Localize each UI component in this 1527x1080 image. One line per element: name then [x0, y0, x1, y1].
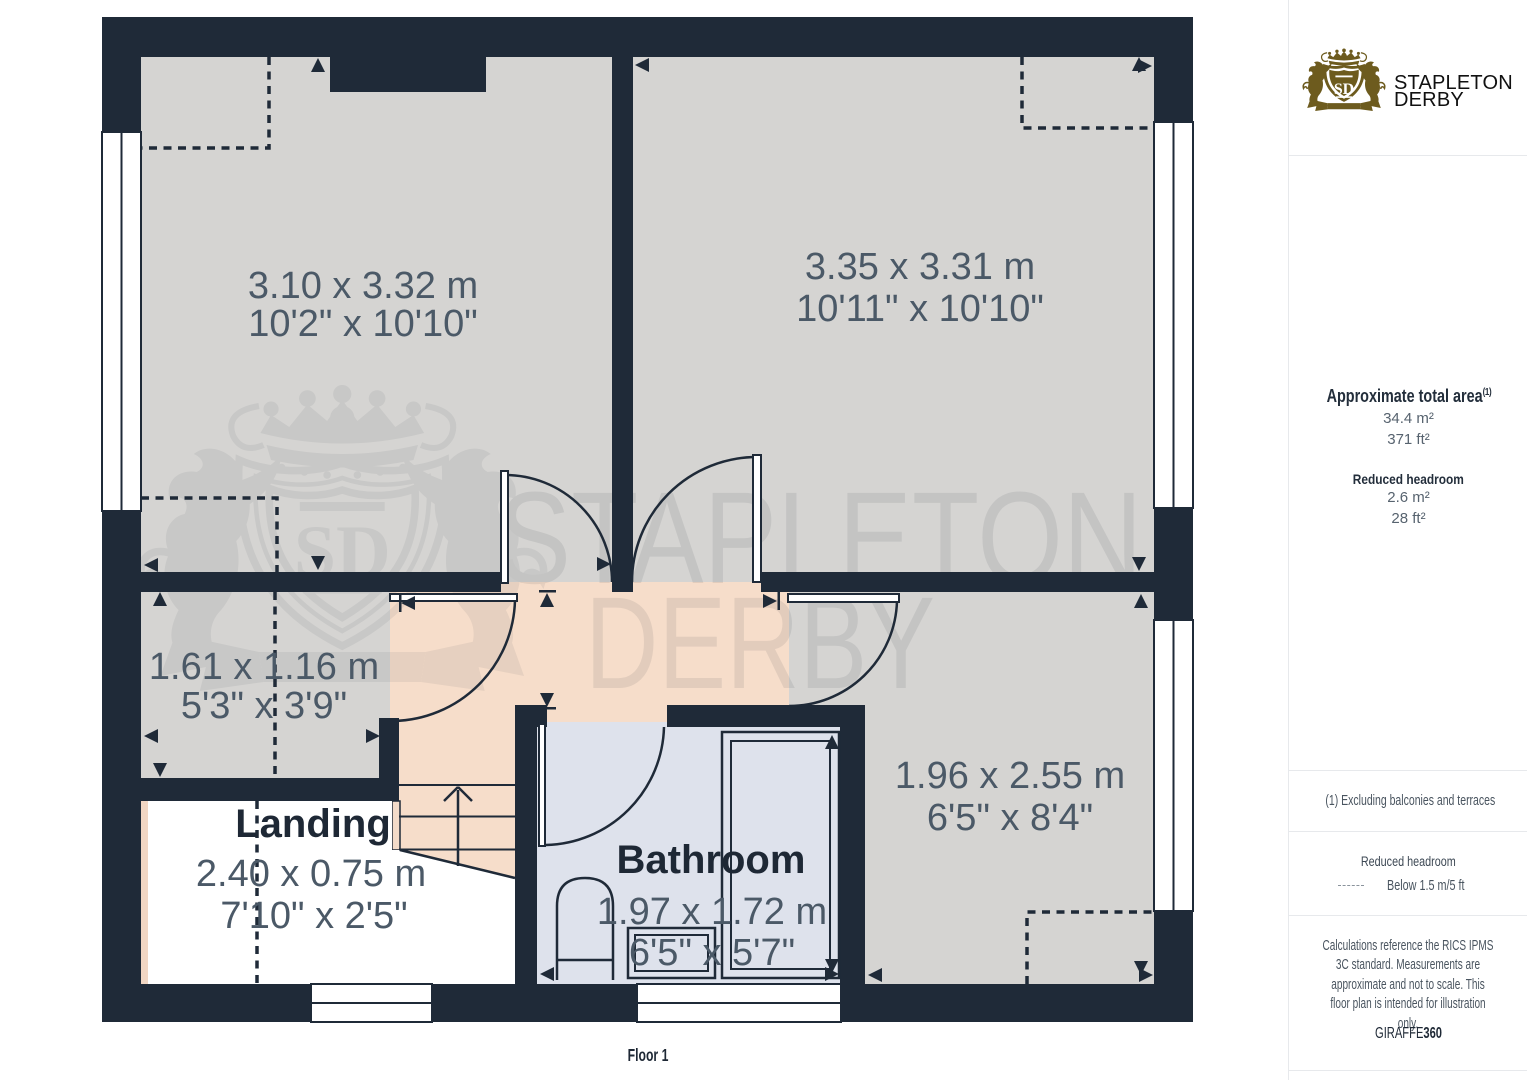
- svg-text:Bathroom: Bathroom: [617, 838, 806, 882]
- svg-text:5'3" x 3'9": 5'3" x 3'9": [181, 685, 347, 727]
- svg-text:Landing: Landing: [235, 802, 391, 846]
- svg-text:1.61 x 1.16 m: 1.61 x 1.16 m: [149, 646, 379, 688]
- svg-text:1.97 x 1.72 m: 1.97 x 1.72 m: [597, 891, 827, 933]
- svg-text:2.40 x 0.75 m: 2.40 x 0.75 m: [196, 853, 426, 895]
- svg-text:7'10" x 2'5": 7'10" x 2'5": [220, 895, 407, 937]
- svg-text:10'11" x 10'10": 10'11" x 10'10": [796, 288, 1044, 330]
- svg-text:10'2" x 10'10": 10'2" x 10'10": [248, 303, 478, 345]
- svg-text:3.10 x 3.32 m: 3.10 x 3.32 m: [248, 265, 478, 307]
- svg-text:SD: SD: [1334, 81, 1354, 98]
- svg-text:6'5" x 8'4": 6'5" x 8'4": [927, 797, 1093, 839]
- svg-text:1.96 x 2.55 m: 1.96 x 2.55 m: [895, 755, 1125, 797]
- svg-text:6'5" x 5'7": 6'5" x 5'7": [629, 932, 795, 974]
- svg-text:Floor 1: Floor 1: [628, 1046, 669, 1066]
- svg-text:3.35 x 3.31 m: 3.35 x 3.31 m: [805, 246, 1035, 288]
